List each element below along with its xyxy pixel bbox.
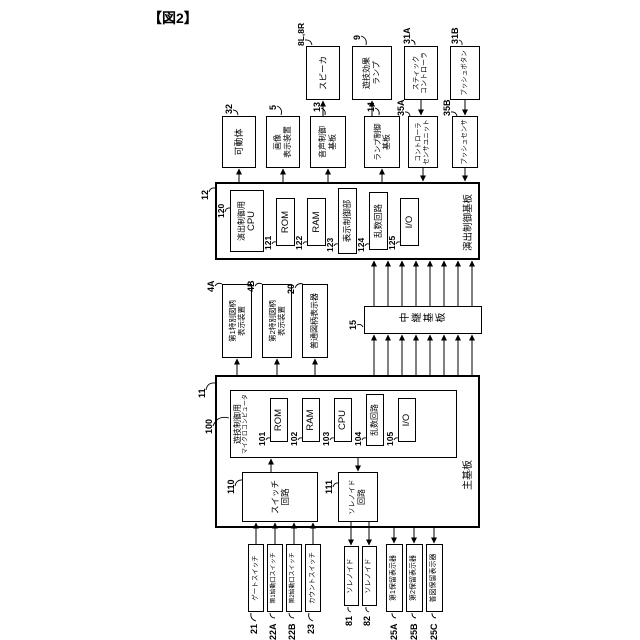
- sound-control-board-label: 基板: [328, 134, 338, 150]
- solenoid-81-label: ソレノイド: [347, 559, 355, 594]
- ref-label-31B: 31B: [450, 27, 460, 44]
- second-special-symbol-display-label: 第2特別図柄: [268, 300, 277, 342]
- effect-io: I/O: [400, 198, 419, 246]
- leader-line: [251, 613, 256, 621]
- figure-number: 【図2】: [148, 8, 198, 28]
- second-start-switch: 第2始動口スイッチ: [286, 544, 302, 612]
- game-effect-lamp-label: 遊技効果: [362, 57, 372, 89]
- ref-label-125: 125: [387, 236, 397, 250]
- ref-label-25A: 25A: [389, 623, 399, 640]
- ref-label-22B: 22B: [287, 623, 297, 640]
- ref-label-23: 23: [306, 624, 316, 634]
- first-special-symbol-display-label: 第1特別図柄: [228, 300, 237, 342]
- ref-label-82: 82: [362, 616, 372, 626]
- first-hold-display: 第1保留表示器: [386, 544, 403, 612]
- main-rom: ROM: [270, 398, 288, 442]
- ref-label-22A: 22A: [268, 623, 278, 640]
- ref-label-81: 81: [344, 616, 354, 626]
- ref-label-121: 121: [263, 236, 273, 250]
- ref-label-8L8R: 8L,8R: [296, 23, 306, 46]
- effect-rom: ROM: [276, 198, 295, 246]
- ref-label-122: 122: [294, 236, 304, 250]
- ref-label-20: 20: [286, 284, 296, 294]
- speaker-label: スピーカ: [318, 56, 328, 90]
- leader-line: [366, 607, 369, 612]
- effect-control-cpu: 演出制御用CPU: [230, 190, 264, 252]
- ref-label-110: 110: [226, 479, 236, 494]
- stick-controller: スティックコントローラ: [404, 46, 438, 100]
- solenoid-82: ソレノイド: [362, 546, 377, 606]
- diagram-rotated-container: 遊技制御用マイクロコンピュータ中継基板ゲートスイッチ第1始動口スイッチ第2始動口…: [0, 0, 640, 640]
- ref-label-5: 5: [268, 105, 278, 110]
- solenoid-circuit: ソレノイド回路: [338, 472, 378, 522]
- speaker: スピーカ: [306, 46, 340, 100]
- controller-sensor-unit: コントローラセンサユニット: [408, 116, 438, 168]
- solenoid-82-label: ソレノイド: [365, 559, 373, 594]
- ref-label-103: 103: [321, 432, 331, 446]
- leader-line: [270, 613, 275, 618]
- ref-label-15: 15: [348, 320, 358, 330]
- ref-label-111: 111: [324, 480, 334, 494]
- ref-label-13: 13: [312, 102, 322, 112]
- ref-label-14: 14: [366, 102, 376, 112]
- first-special-symbol-display: 第1特別図柄表示装置: [222, 284, 252, 358]
- main-random-circuit-label: 乱数回路: [370, 404, 380, 436]
- solenoid-81: ソレノイド: [344, 546, 359, 606]
- image-display-device-label: 表示装置: [283, 126, 293, 158]
- push-button-label: プッシュボタン: [461, 50, 469, 96]
- game-effect-lamp: 遊技効果ランプ: [352, 46, 392, 100]
- effect-control-cpu-label: 演出制御用: [237, 201, 247, 241]
- ref-label-101: 101: [257, 432, 267, 446]
- relay-board: 中継基板: [364, 306, 482, 334]
- ref-label-31A: 31A: [402, 27, 412, 44]
- count-switch-label: カウントスイッチ: [309, 552, 317, 604]
- main-ram-label: RAM: [305, 409, 316, 430]
- push-sensor-label: プッシュセンサ: [461, 119, 469, 165]
- effect-random-circuit: 乱数回路: [369, 192, 388, 250]
- second-special-symbol-display: 第2特別図柄表示装置: [262, 284, 292, 358]
- first-hold-display-label: 第1保留表示器: [390, 555, 398, 601]
- ref-label-21: 21: [249, 624, 259, 634]
- display-control-unit: 表示制御部: [338, 188, 357, 254]
- main-rom-label: ROM: [273, 409, 284, 431]
- ref-label-105: 105: [385, 432, 395, 446]
- leader-line: [255, 283, 262, 286]
- relay-board-label: 中継基板: [399, 314, 447, 326]
- gate-switch: ゲートスイッチ: [248, 544, 264, 612]
- leader-line: [305, 40, 312, 45]
- push-button: プッシュボタン: [450, 46, 480, 100]
- image-display-device-label: 画像: [273, 134, 283, 150]
- game-control-microcomputer-label: マイクロコンピュータ: [243, 394, 250, 454]
- ref-label-102: 102: [289, 432, 299, 446]
- stick-controller-label: スティック: [413, 56, 421, 91]
- image-display-device: 画像表示装置: [266, 116, 300, 168]
- ref-label-12: 12: [200, 190, 210, 200]
- ref-label-120: 120: [216, 204, 226, 218]
- sound-control-board: 音声制御基板: [310, 116, 346, 168]
- switch-circuit-label: 回路: [280, 489, 290, 506]
- game-control-microcomputer-label: 遊技制御用: [233, 404, 243, 444]
- main-io-label: I/O: [401, 414, 412, 427]
- effect-rom-label: ROM: [280, 211, 291, 233]
- effect-control-cpu-label: CPU: [246, 211, 257, 231]
- leader-line: [206, 383, 215, 390]
- main-random-circuit: 乱数回路: [366, 394, 384, 446]
- ref-label-9: 9: [352, 35, 362, 40]
- first-special-symbol-display-label: 表示装置: [237, 306, 246, 336]
- leader-line: [392, 613, 396, 618]
- main-io: I/O: [398, 398, 416, 442]
- display-control-unit-label: 表示制御部: [342, 200, 352, 243]
- controller-sensor-unit-label: センサユニット: [423, 119, 431, 165]
- ref-label-104: 104: [353, 432, 363, 446]
- leader-line: [289, 613, 294, 618]
- switch-circuit: スイッチ回路: [242, 472, 318, 522]
- first-start-switch: 第1始動口スイッチ: [267, 544, 283, 612]
- push-sensor: プッシュセンサ: [452, 116, 478, 168]
- leader-line: [348, 607, 351, 612]
- ref-label-123: 123: [325, 238, 335, 252]
- leader-line: [309, 613, 313, 621]
- effect-random-circuit-label: 乱数回路: [373, 204, 383, 238]
- normal-hold-display: 普図保留表示器: [426, 544, 443, 612]
- main-cpu: CPU: [334, 398, 352, 442]
- stick-controller-label: コントローラ: [421, 52, 429, 94]
- main-ram: RAM: [302, 398, 320, 442]
- ref-label-32: 32: [224, 104, 234, 114]
- ref-label-100: 100: [204, 419, 214, 434]
- ref-label-25C: 25C: [429, 623, 439, 640]
- gate-switch-label: ゲートスイッチ: [252, 555, 260, 601]
- effect-io-label: I/O: [404, 216, 415, 229]
- second-special-symbol-display-label: 表示装置: [277, 306, 286, 336]
- ref-label-35B: 35B: [442, 99, 452, 116]
- movable-body: 可動体: [222, 116, 256, 168]
- movable-body-label: 可動体: [234, 129, 245, 156]
- second-hold-display-label: 第2保留表示器: [410, 555, 418, 601]
- ref-label-124: 124: [356, 238, 366, 252]
- effect-ram-label: RAM: [311, 211, 322, 232]
- leader-line: [432, 613, 436, 618]
- lamp-control-board: ランプ制御基板: [364, 116, 400, 168]
- ref-label-11: 11: [197, 388, 207, 398]
- patent-figure-page: 【図2】 遊技制御用マイクロコンピュータ中継基板ゲートスイッチ第1始動口スイッチ…: [0, 0, 640, 640]
- main-board-title: 主基板: [459, 460, 474, 490]
- normal-symbol-display-label: 普通図柄表示器: [310, 293, 320, 349]
- second-hold-display: 第2保留表示器: [406, 544, 423, 612]
- sound-control-board-label: 音声制御: [318, 126, 328, 158]
- second-start-switch-label: 第2始動口スイッチ: [290, 552, 297, 603]
- effect-ram: RAM: [307, 198, 326, 246]
- switch-circuit-label: スイッチ: [270, 480, 280, 514]
- effect-board-title: 演出制御基板: [460, 194, 474, 251]
- controller-sensor-unit-label: コントローラ: [415, 123, 423, 162]
- normal-symbol-display: 普通図柄表示器: [302, 284, 328, 358]
- game-effect-lamp-label: ランプ: [372, 61, 382, 85]
- lamp-control-board-label: ランプ制御: [373, 123, 382, 160]
- leader-line: [215, 283, 222, 286]
- ref-label-4A: 4A: [206, 280, 216, 292]
- leader-line: [412, 613, 416, 618]
- count-switch: カウントスイッチ: [305, 544, 321, 612]
- main-cpu-label: CPU: [337, 410, 348, 430]
- first-start-switch-label: 第1始動口スイッチ: [271, 552, 278, 603]
- ref-label-4B: 4B: [246, 280, 256, 292]
- lamp-control-board-label: 基板: [382, 134, 392, 150]
- normal-hold-display-label: 普図保留表示器: [430, 554, 438, 603]
- solenoid-circuit-label: 回路: [357, 489, 367, 505]
- ref-label-25B: 25B: [409, 623, 419, 640]
- ref-label-35A: 35A: [396, 99, 406, 116]
